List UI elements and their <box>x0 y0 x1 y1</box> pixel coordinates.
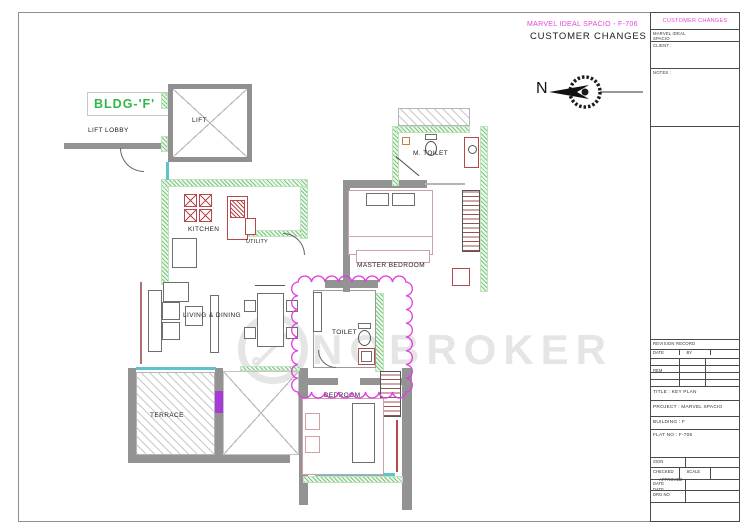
tb-client-label: CLIENT : <box>651 42 739 48</box>
green-wall <box>303 476 403 483</box>
blanket-line <box>348 236 433 237</box>
tb-drg-row: DRG NO <box>651 491 739 503</box>
tb-sign-label: SIGN <box>651 458 686 467</box>
tb-notes-label: NOTES : <box>651 69 739 75</box>
project-annotation: MARVEL IDEAL SPACIO - F-706 <box>527 21 638 28</box>
kitchen-counter <box>172 238 197 268</box>
terrace-door-marker <box>215 391 223 413</box>
revision-table-row <box>651 373 739 380</box>
master-bed <box>348 190 433 255</box>
wall <box>425 183 465 185</box>
rev-title-text: REVISION RECORD <box>651 340 739 346</box>
rev-col-date: DATE <box>651 350 680 355</box>
wall <box>343 180 427 188</box>
stove-burner <box>199 209 212 222</box>
title-block-row: CLIENT : <box>651 42 739 69</box>
revision-table-header: DATE BY REM <box>651 350 739 359</box>
cabinet-hatch <box>230 200 245 218</box>
kitchen-label: KITCHEN <box>188 226 219 233</box>
wall <box>308 378 338 385</box>
tb-project-line2: SPACIO <box>651 36 739 41</box>
wall <box>402 368 412 510</box>
wall <box>128 455 290 463</box>
tb-building-text: BUILDING : F <box>651 417 739 425</box>
void-area <box>223 371 299 455</box>
title-block: CUSTOMER CHANGES MARVEL IDEAL SPACIO CLI… <box>650 12 740 522</box>
dining-table <box>257 293 284 347</box>
side-table <box>305 413 320 430</box>
armchair <box>163 282 189 302</box>
dining-chair <box>286 300 298 312</box>
lift-shaft <box>168 84 252 162</box>
wall <box>64 143 168 149</box>
stove-burner <box>184 194 197 207</box>
utility-label: UTILITY <box>246 239 268 245</box>
tb-scale-label: SCALE <box>684 468 710 479</box>
balcony-hatch <box>398 108 470 126</box>
revision-table-row <box>651 359 739 366</box>
toilet-fixture <box>402 137 410 145</box>
sofa <box>148 290 162 352</box>
lift-label: LIFT <box>192 117 207 124</box>
green-wall <box>161 93 168 109</box>
wall <box>325 280 378 288</box>
living-dining-label: LIVING & DINING <box>183 312 241 319</box>
dining-chair <box>244 300 256 312</box>
tb-flat-row: FLAT NO : F-706 <box>651 430 739 458</box>
green-wall <box>396 126 470 133</box>
green-wall <box>161 136 168 152</box>
revision-table-row <box>651 366 739 373</box>
tb-checked-label: CHECKED <box>651 468 680 479</box>
wall <box>215 368 223 462</box>
lift-lobby-label: LIFT LOBBY <box>88 127 129 134</box>
title-block-row: NOTES : <box>651 69 739 127</box>
dining-chair <box>244 327 256 339</box>
tb-project-row: PROJECT : MARVEL SPACIO <box>651 401 739 417</box>
green-wall <box>375 293 384 372</box>
toilet-shelf <box>313 292 322 332</box>
kitchen-fixture <box>245 218 256 235</box>
window-line <box>136 367 216 370</box>
fixture-line <box>396 420 398 472</box>
stove-burner <box>199 194 212 207</box>
tv-unit <box>210 295 219 353</box>
sofa-cushion <box>162 322 180 340</box>
pillow <box>366 193 389 206</box>
wc-tank <box>425 134 437 140</box>
title-block-empty <box>651 127 739 340</box>
tb-date2-label: DATE <box>651 480 686 490</box>
mattress <box>352 403 375 463</box>
tb-building-row: BUILDING : F <box>651 417 739 430</box>
dining-chair <box>286 327 298 339</box>
logo-dot <box>252 357 261 366</box>
basin-icon <box>468 145 477 154</box>
wall <box>128 368 136 462</box>
revision-table-title: REVISION RECORD <box>651 340 739 350</box>
window-line <box>166 162 169 180</box>
building-label: BLDG-'F' <box>94 97 155 111</box>
tb-date-row: DATE <box>651 480 739 491</box>
tb-project-text: PROJECT : MARVEL SPACIO <box>651 401 739 410</box>
wardrobe <box>462 190 480 252</box>
tb-title-text: TITLE : KEY PLAN <box>651 387 739 395</box>
fixture-box <box>452 268 470 286</box>
washbasin <box>358 348 375 365</box>
stove-burner <box>184 209 197 222</box>
tb-checked-row: CHECKED SCALE DATE <box>651 468 739 480</box>
green-wall <box>161 185 169 285</box>
green-wall <box>161 179 308 187</box>
tb-sign-row: SIGN APPROVED <box>651 458 739 468</box>
tb-drg-label: DRG NO <box>651 491 686 502</box>
m-toilet-label: M. TOILET <box>413 150 448 157</box>
terrace-label: TERRACE <box>150 412 184 419</box>
washbasin-counter <box>464 137 479 168</box>
sofa-cushion <box>162 302 180 320</box>
side-table <box>305 436 320 453</box>
rev-col-by: BY <box>684 350 710 355</box>
revision-table-row <box>651 380 739 387</box>
window-sill-line <box>255 285 285 286</box>
tb-title-row: TITLE : KEY PLAN <box>651 387 739 401</box>
living-edge-line <box>140 282 142 364</box>
toilet-label: TOILET <box>332 329 357 336</box>
wc-icon <box>358 330 371 346</box>
pillow <box>392 193 415 206</box>
title-block-header: CUSTOMER CHANGES <box>651 13 739 30</box>
title-block-row: MARVEL IDEAL SPACIO <box>651 30 739 42</box>
north-compass-icon <box>525 68 645 116</box>
green-wall <box>480 126 488 292</box>
master-bedroom-label: MASTER BEDROOM <box>357 262 425 269</box>
bedroom-label: BEDROOM <box>324 392 360 399</box>
customer-changes-annotation: CUSTOMER CHANGES <box>530 31 647 42</box>
wc-tank <box>358 323 371 329</box>
basin-inner <box>361 351 372 362</box>
tb-flat-text: FLAT NO : F-706 <box>651 430 739 438</box>
